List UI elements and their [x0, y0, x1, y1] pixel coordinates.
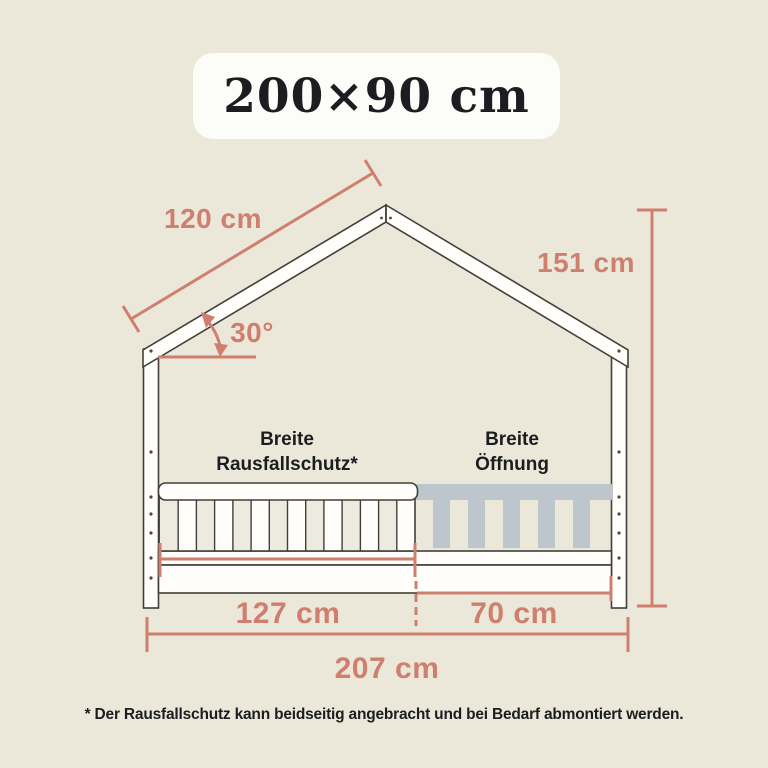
bed-base — [159, 551, 612, 593]
opening-section-caption-line2: Öffnung — [475, 452, 549, 477]
opening-rail-ghost — [416, 484, 612, 548]
total-height-label: 151 cm — [537, 247, 635, 279]
roof-length-label: 120 cm — [164, 203, 262, 235]
height-dimension-line — [637, 210, 667, 606]
fall-protection-rail — [159, 483, 418, 551]
roof-angle-label: 30° — [230, 317, 274, 349]
total-width-label: 207 cm — [335, 652, 440, 686]
rail-width-label: 127 cm — [236, 597, 341, 631]
footnote: * Der Rausfallschutz kann beidseitig ang… — [0, 706, 768, 724]
left-post — [144, 349, 159, 608]
rail-section-caption-line1: Breite — [216, 427, 357, 452]
bed-dimension-diagram: 200×90 cm — [0, 0, 768, 768]
opening-width-label: 70 cm — [470, 597, 558, 631]
rail-section-caption: Breite Rausfallschutz* — [216, 427, 357, 477]
rail-section-caption-line2: Rausfallschutz* — [216, 452, 357, 477]
right-post — [612, 349, 627, 608]
opening-section-caption: Breite Öffnung — [475, 427, 549, 477]
opening-section-caption-line1: Breite — [475, 427, 549, 452]
